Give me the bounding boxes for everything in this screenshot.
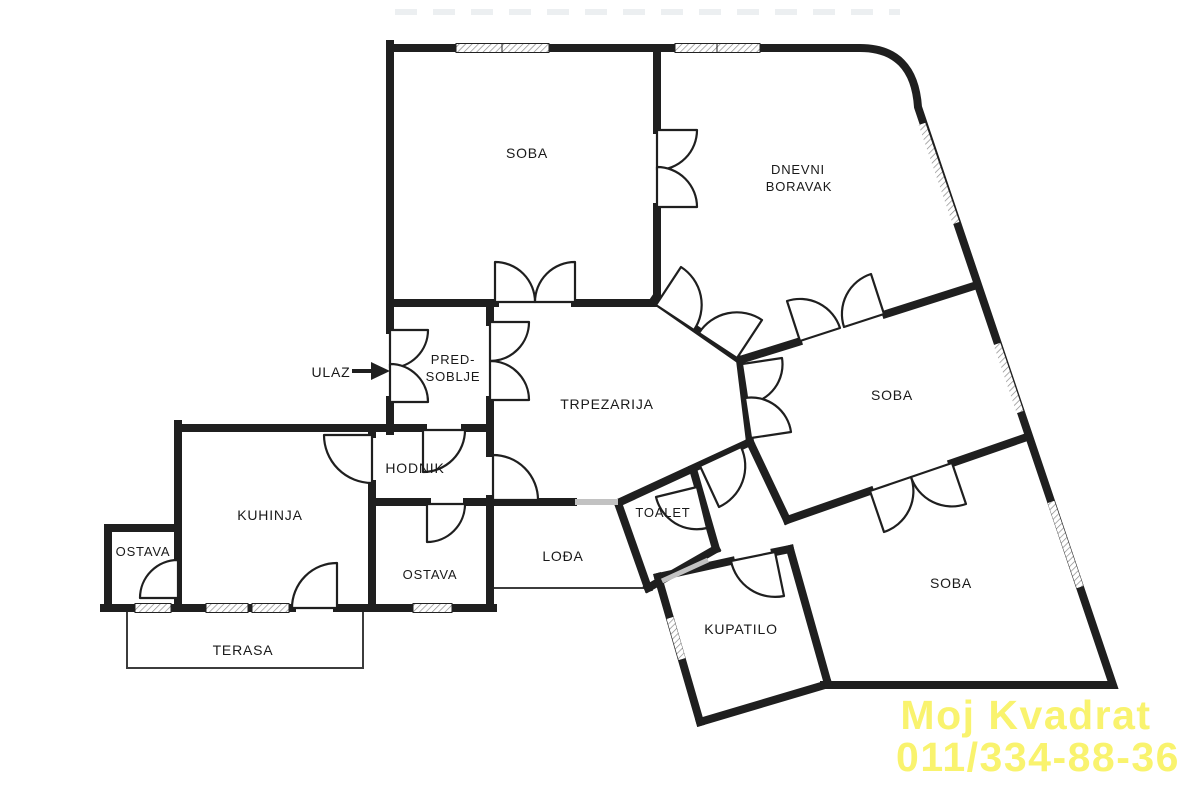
room-label-pred-line1: PRED- — [431, 352, 475, 367]
watermark: Moj Kvadrat 011/334-88-36 — [896, 692, 1180, 780]
door-pred-trpezarija-bottom — [490, 361, 529, 400]
room-label-ostava-mid: OSTAVA — [403, 567, 458, 582]
wall-kupatilo-east — [790, 549, 828, 684]
door-soba1-dnevni-bottom — [657, 167, 697, 207]
room-label-toalet: TOALET — [635, 505, 690, 520]
door-dnevni-soba2-right — [842, 274, 884, 327]
room-label-soba-mid: SOBA — [871, 387, 913, 403]
entrance-label: ULAZ — [312, 364, 351, 380]
room-label-kupatilo: KUPATILO — [704, 621, 778, 637]
arrow-head — [371, 362, 390, 380]
door-kuhinja-hodnik — [324, 435, 372, 483]
room-label-lodja: LOĐA — [542, 548, 583, 564]
door-pred-trpezarija-top — [490, 322, 529, 361]
room-label-kuhinja: KUHINJA — [237, 507, 303, 523]
door-dnevni-trpezarija-right — [699, 312, 762, 358]
walls — [104, 44, 1113, 722]
room-label-pred-line2: SOBLJE — [426, 369, 481, 384]
room-label-dnevni-line1: DNEVNI — [771, 162, 825, 177]
door-kupatilo — [731, 552, 784, 597]
watermark-line1: Moj Kvadrat — [900, 692, 1151, 738]
door-ostava-left — [140, 560, 178, 598]
door-dnevni-trpezarija-left — [656, 267, 702, 330]
door-entry-top — [390, 330, 428, 368]
door-soba2-soba3-right — [911, 463, 966, 506]
thin-outlines — [127, 588, 648, 668]
door-kuhinja-terasa — [292, 563, 337, 608]
room-label-terasa: TERASA — [213, 642, 274, 658]
watermark-line2: 011/334-88-36 — [896, 734, 1180, 780]
door-soba1-dnevni-top — [657, 130, 697, 170]
room-labels: SOBA DNEVNI BORAVAK PRED- SOBLJE TRPEZAR… — [116, 145, 972, 658]
door-soba1-bottom-left — [495, 262, 535, 302]
room-label-hodnik: HODNIK — [385, 460, 444, 476]
wall-kupatilo-south — [700, 684, 828, 722]
door-dnevni-soba2-left — [787, 299, 840, 341]
room-label-trpezarija: TRPEZARIJA — [560, 396, 654, 412]
door-soba1-bottom-right — [535, 262, 575, 302]
entrance-arrow — [352, 362, 390, 380]
doors — [140, 130, 966, 608]
room-label-ostava-left: OSTAVA — [116, 544, 171, 559]
wall-e — [750, 442, 787, 520]
room-label-soba-top: SOBA — [506, 145, 548, 161]
door-soba2-soba3-left — [870, 477, 913, 532]
room-label-dnevni-line2: BORAVAK — [766, 179, 833, 194]
floor-plan-svg: SOBA DNEVNI BORAVAK PRED- SOBLJE TRPEZAR… — [0, 0, 1200, 799]
floor-plan-page: SOBA DNEVNI BORAVAK PRED- SOBLJE TRPEZAR… — [0, 0, 1200, 799]
door-wallb-bottom — [745, 397, 791, 438]
door-entry-bottom — [390, 364, 428, 402]
door-hodnik-ostava — [427, 504, 465, 542]
room-label-soba-bottom: SOBA — [930, 575, 972, 591]
door-hodnik-trpezarija — [493, 455, 538, 500]
terasa-outline — [127, 612, 363, 668]
door-trpezarija-lobby — [700, 447, 745, 507]
